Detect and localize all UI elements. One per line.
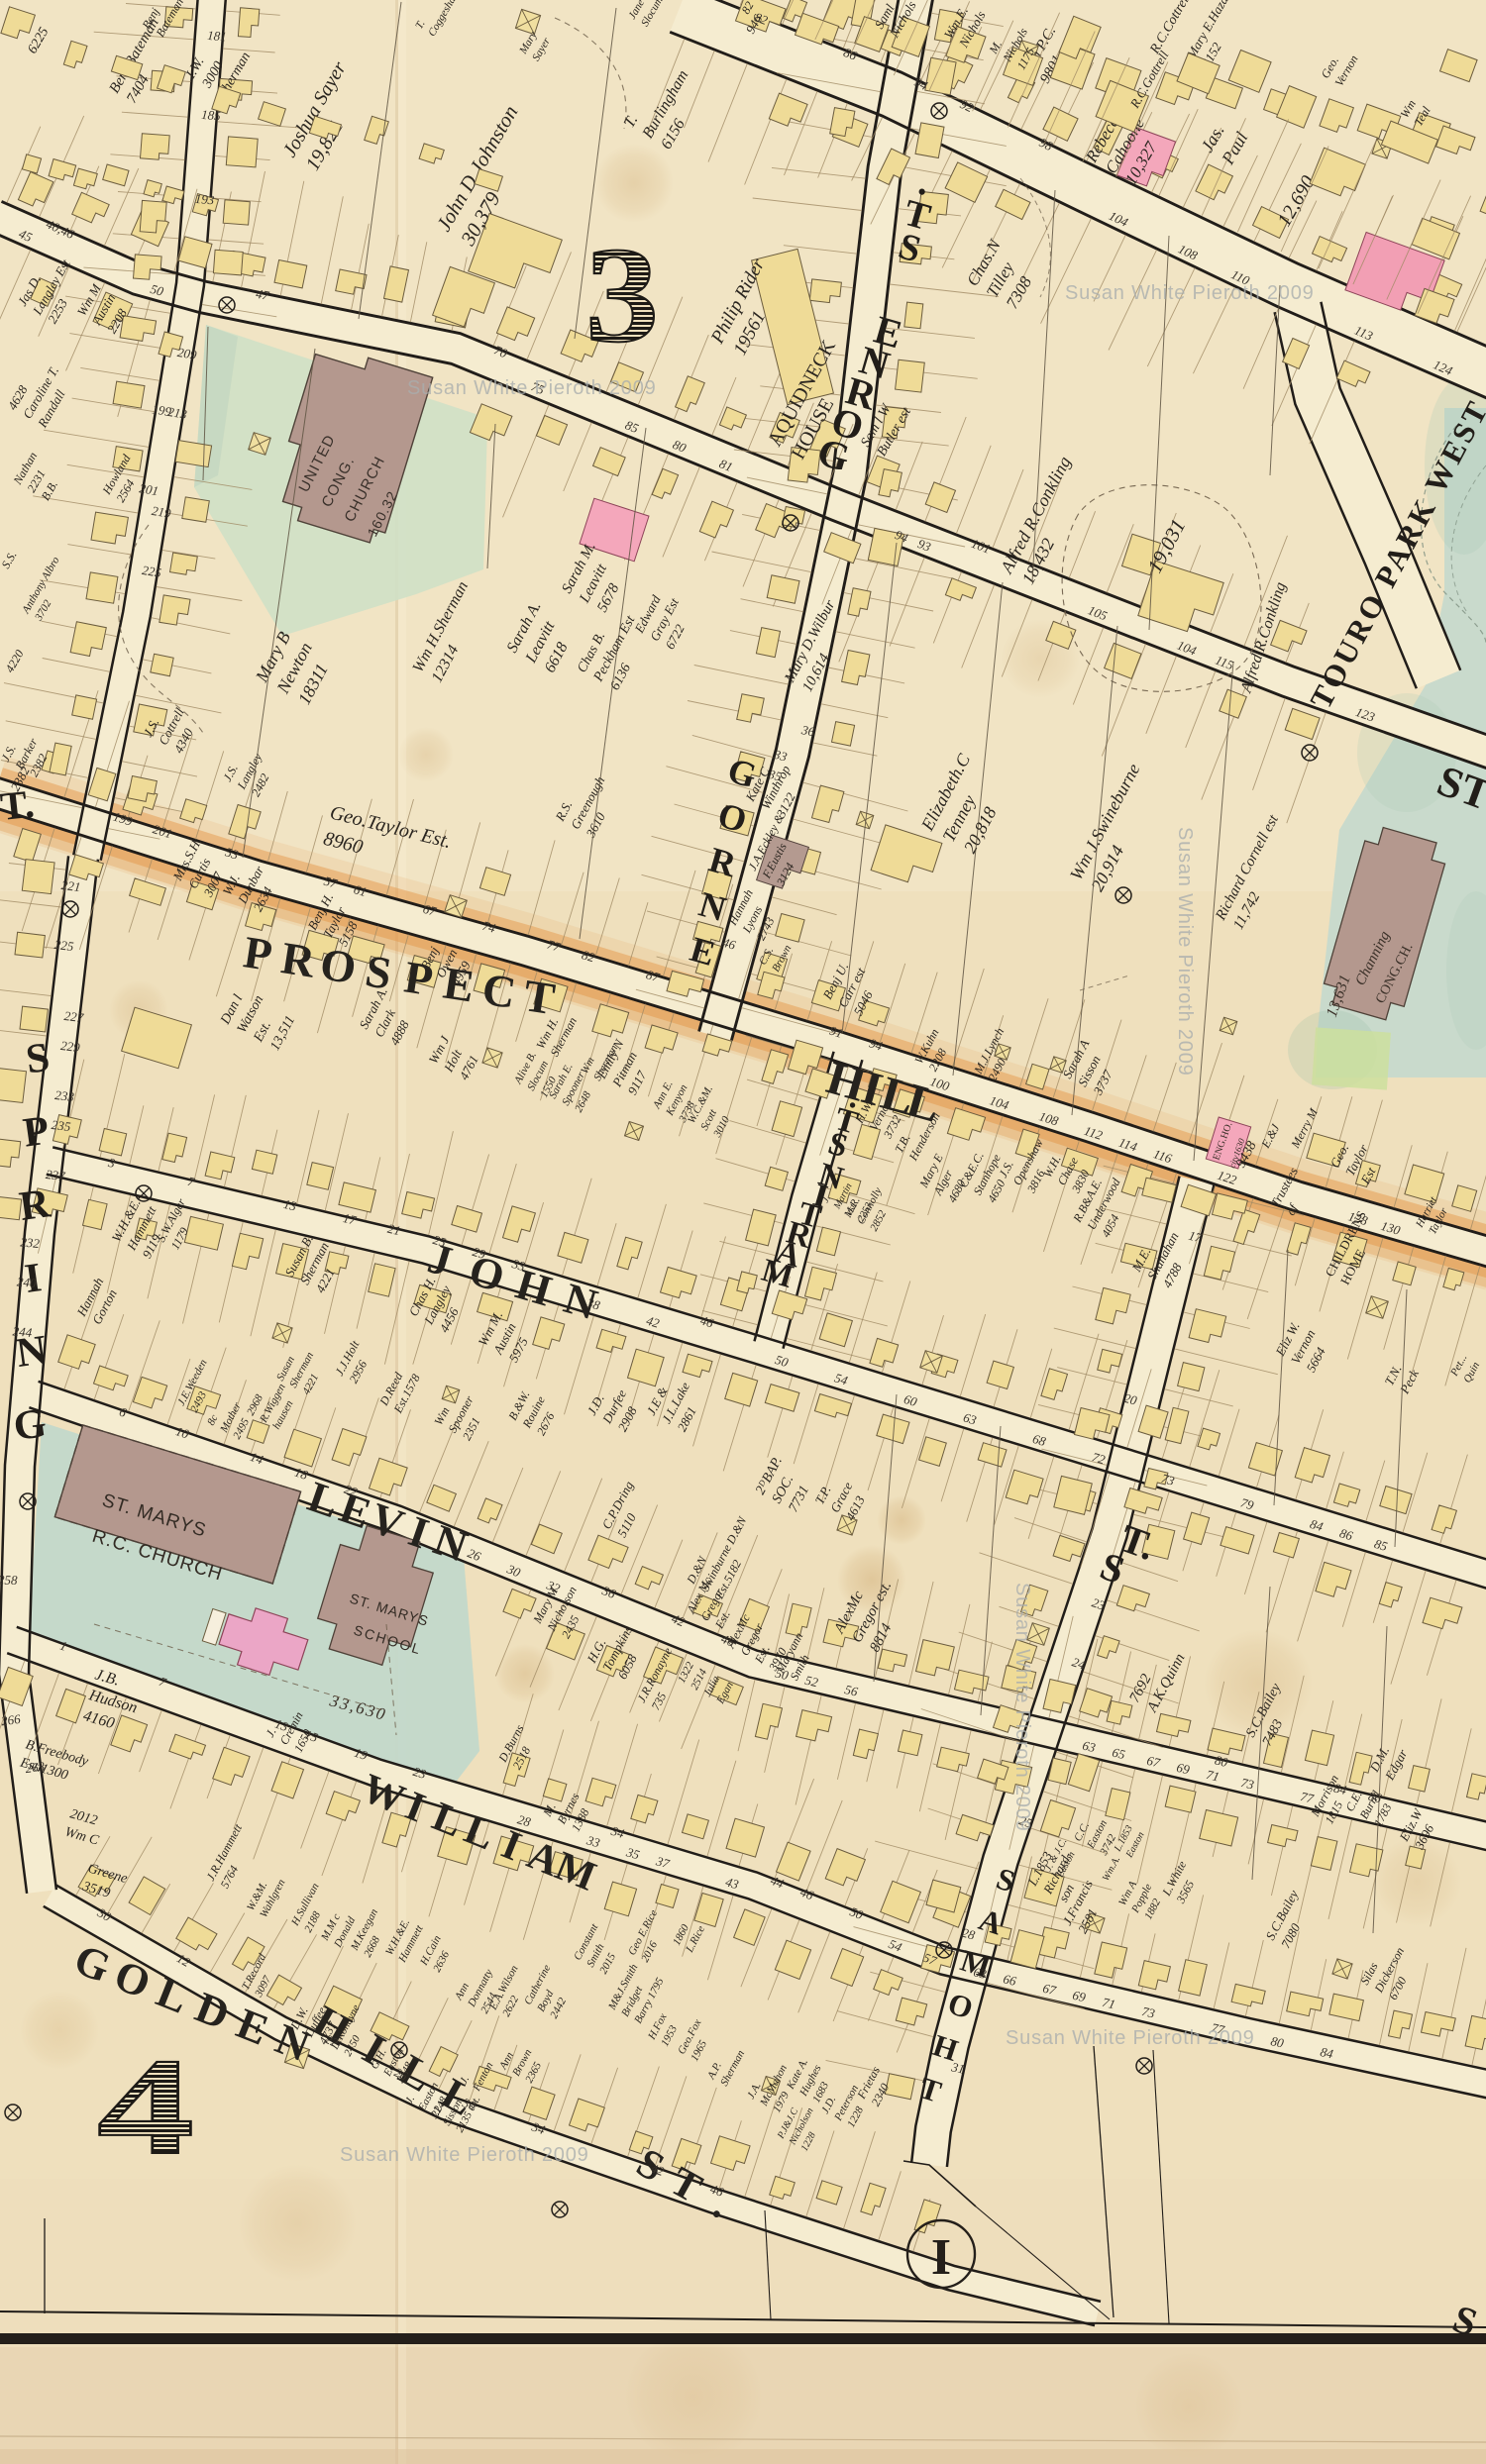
svg-text:237: 237 [45, 1167, 66, 1183]
svg-text:225: 225 [53, 937, 75, 954]
svg-text:233: 233 [54, 1087, 76, 1104]
svg-text:227: 227 [63, 1008, 85, 1025]
svg-text:235: 235 [51, 1117, 72, 1134]
svg-text:Susan White Pieroth 2009: Susan White Pieroth 2009 [1065, 282, 1315, 304]
svg-text:Susan White Pieroth 2009: Susan White Pieroth 2009 [1006, 2027, 1255, 2049]
svg-text:219: 219 [151, 503, 172, 521]
svg-text:4: 4 [97, 2030, 194, 2184]
svg-text:G: G [11, 1400, 50, 1450]
svg-text:Susan White Pieroth 2009: Susan White Pieroth 2009 [1011, 1583, 1033, 1832]
svg-text:181: 181 [207, 28, 228, 44]
svg-text:240: 240 [16, 1274, 37, 1290]
svg-text:213: 213 [166, 404, 188, 422]
svg-text:3: 3 [585, 219, 659, 370]
svg-text:244: 244 [12, 1323, 33, 1340]
svg-text:193: 193 [194, 191, 215, 207]
svg-text:258: 258 [0, 1572, 18, 1588]
svg-text:225: 225 [141, 563, 162, 580]
svg-text:Susan White Pieroth 2009: Susan White Pieroth 2009 [340, 2144, 589, 2166]
svg-text:201: 201 [138, 480, 159, 498]
svg-text:268: 268 [25, 1759, 47, 1776]
svg-text:185: 185 [201, 107, 222, 123]
svg-text:I: I [931, 2229, 951, 2286]
svg-text:209: 209 [176, 345, 198, 362]
svg-text:232: 232 [20, 1234, 41, 1251]
svg-text:221: 221 [60, 877, 81, 894]
svg-text:Susan White Pieroth 2009: Susan White Pieroth 2009 [407, 377, 657, 399]
svg-text:266: 266 [0, 1711, 22, 1728]
svg-text:229: 229 [59, 1038, 81, 1055]
svg-text:Susan White Pieroth 2009: Susan White Pieroth 2009 [1174, 827, 1196, 1077]
